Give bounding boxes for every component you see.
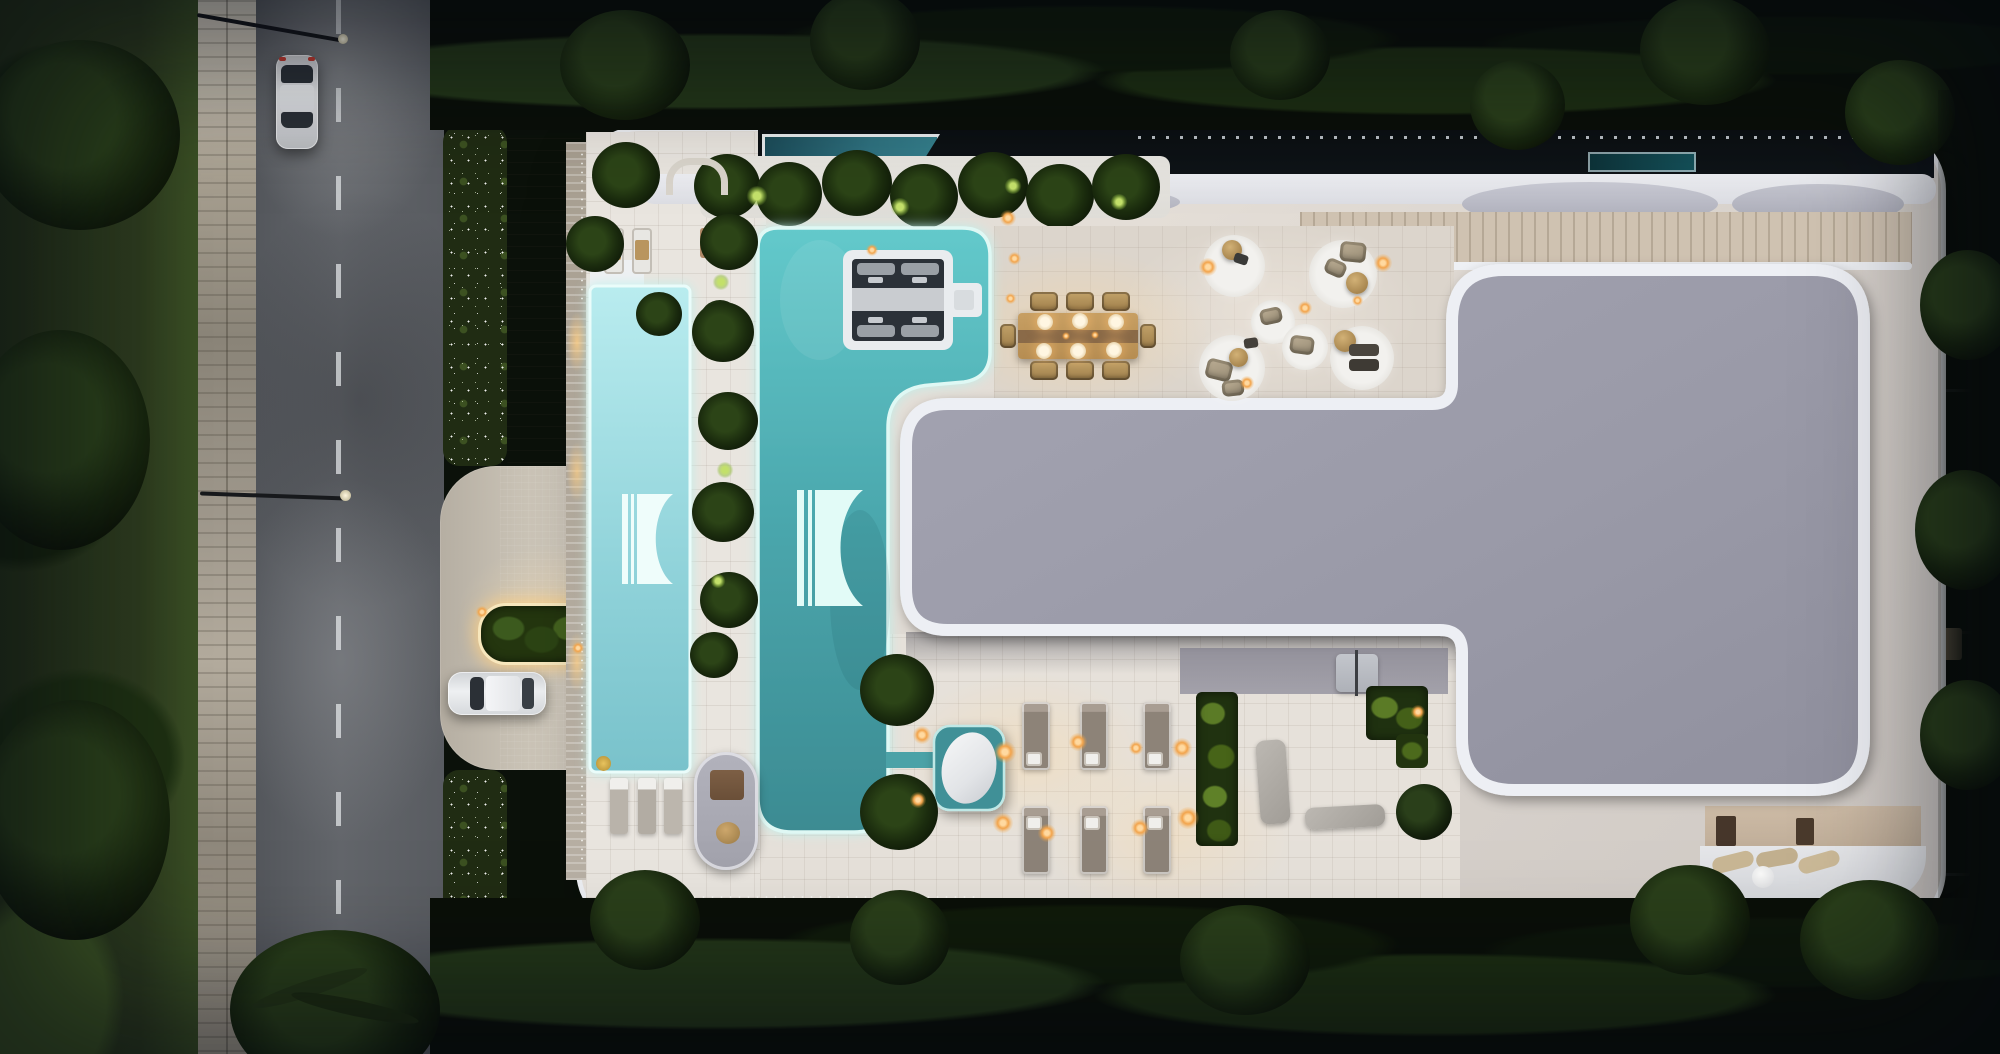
tree-bottom-2 xyxy=(850,890,950,985)
dining-chair-top-2 xyxy=(1066,292,1094,311)
lounge-armchair-2a xyxy=(1339,241,1367,264)
hedge-planter xyxy=(1196,692,1238,846)
midbed-palm-4 xyxy=(692,482,754,542)
sw-small-bed-1 xyxy=(610,778,628,834)
light-plunge-2 xyxy=(910,792,926,808)
narrow-pool-logo-bar-1 xyxy=(622,494,628,584)
spa-lounger-2 xyxy=(901,263,939,275)
light-sunbed-6 xyxy=(1038,824,1056,842)
tree-overhang-north-1 xyxy=(1470,60,1565,150)
scene xyxy=(0,0,2000,1054)
midbed-uplight-3 xyxy=(710,574,726,588)
dining-plate-4 xyxy=(1036,343,1052,359)
sunbed-table-3 xyxy=(1147,752,1163,766)
sw-pod-bench xyxy=(710,770,744,800)
dining-chair-right xyxy=(1140,324,1156,348)
tree-top-1 xyxy=(560,10,690,120)
light-entry-1 xyxy=(476,606,488,618)
corner-planter-tail xyxy=(1396,734,1428,768)
dining-plate-5 xyxy=(1070,343,1086,359)
sw-small-bed-3 xyxy=(664,778,682,834)
dining-chair-bottom-1 xyxy=(1030,361,1058,380)
light-entry-2 xyxy=(572,642,584,654)
sw-small-bed-2 xyxy=(638,778,656,834)
sunbed-table-1 xyxy=(1026,752,1042,766)
light-spa-2 xyxy=(1008,252,1021,265)
light-dining-candle-1 xyxy=(1062,332,1070,340)
light-sunbed-7 xyxy=(1131,819,1149,837)
spa-lounger-3 xyxy=(857,325,895,337)
spa-pillow-1 xyxy=(868,277,883,283)
spa-lounger-4 xyxy=(901,325,939,337)
stone-bench-horizontal xyxy=(1304,804,1385,830)
nw-plant-1 xyxy=(592,142,660,208)
dining-chair-left xyxy=(1000,324,1016,348)
dining-chair-top-1 xyxy=(1030,292,1058,311)
main-pool-logo-bar-2 xyxy=(808,490,812,606)
plunge-palm-top xyxy=(860,654,934,726)
stone-bench-vertical xyxy=(1255,739,1291,825)
light-lounge-2 xyxy=(1374,254,1392,272)
midbed-palm-3 xyxy=(698,392,758,450)
midbed-uplight-2 xyxy=(716,462,734,478)
tree-overhang-south-2 xyxy=(1800,880,1940,1000)
tree-top-4 xyxy=(1640,0,1770,105)
sw-pod-stool xyxy=(716,822,740,844)
spa-access-step xyxy=(954,290,974,310)
midbed-palm-1 xyxy=(700,214,758,270)
lounge-daybed-6a xyxy=(1349,344,1379,356)
sunbed-table-5 xyxy=(1084,816,1100,830)
midbed-palm-2 xyxy=(692,302,754,362)
light-sunbed-1 xyxy=(994,741,1016,763)
dining-plate-1 xyxy=(1037,314,1053,330)
spa-pillow-3 xyxy=(868,317,883,323)
spa-pillow-4 xyxy=(912,317,927,323)
midbed-palm-6 xyxy=(690,632,738,678)
lounge-daybed-6b xyxy=(1349,359,1379,371)
garden-bench-slat xyxy=(1355,650,1358,696)
tree-bottom-3 xyxy=(1180,905,1310,1015)
spa-center-band xyxy=(852,288,944,311)
lounge-table-2 xyxy=(1346,272,1368,294)
dining-plate-3 xyxy=(1108,314,1124,330)
light-spa-1 xyxy=(1000,210,1016,226)
nw-pergola-arc xyxy=(666,158,728,195)
light-sunbed-3 xyxy=(1129,741,1143,755)
dining-chair-bottom-2 xyxy=(1066,361,1094,380)
light-sunbed-4 xyxy=(1172,738,1192,758)
light-plunge-1 xyxy=(913,726,931,744)
dining-table-runner xyxy=(1018,330,1138,343)
midbed-uplight-1 xyxy=(712,274,730,290)
dining-plate-6 xyxy=(1106,342,1122,358)
dining-chair-bottom-3 xyxy=(1102,361,1130,380)
sw-stool-yellow xyxy=(596,756,611,771)
sunbed-table-2 xyxy=(1084,752,1100,766)
dining-chair-top-3 xyxy=(1102,292,1130,311)
sunbed-table-6 xyxy=(1147,816,1163,830)
lounge-throw-3 xyxy=(1243,337,1258,349)
light-corner-planter xyxy=(1411,705,1425,719)
plunge-palm-bottom xyxy=(860,774,938,850)
lounge-armchair-4 xyxy=(1289,334,1315,355)
light-lounge-1 xyxy=(1199,258,1217,276)
spa-lounger-1 xyxy=(857,263,895,275)
light-spa-3 xyxy=(1005,293,1016,304)
spa-pillow-2 xyxy=(912,277,927,283)
nw-plant-2 xyxy=(566,216,624,272)
light-sunbed-2 xyxy=(1069,733,1087,751)
tree-top-3 xyxy=(1230,10,1330,100)
dining-plate-2 xyxy=(1072,313,1088,329)
tree-overhang-south-1 xyxy=(1630,865,1750,975)
light-lounge-3 xyxy=(1298,301,1312,315)
round-bush xyxy=(1396,784,1452,840)
narrow-pool-logo-bar-2 xyxy=(631,494,634,584)
midbed-palm-5 xyxy=(700,572,758,628)
light-spa-4 xyxy=(866,244,878,256)
lounge-table-5 xyxy=(1229,348,1248,367)
nw-plant-3 xyxy=(636,292,682,336)
nw-lounger-2-cushion xyxy=(635,240,649,260)
light-sunbed-5 xyxy=(993,813,1013,833)
plunge-channel xyxy=(886,752,940,768)
light-dining-candle-2 xyxy=(1091,331,1099,339)
light-lounge-4 xyxy=(1240,376,1254,390)
light-lounge-5 xyxy=(1352,295,1363,306)
tree-bottom-1 xyxy=(590,870,700,970)
light-sunbed-8 xyxy=(1177,807,1199,829)
main-pool-logo-bar-1 xyxy=(797,490,804,606)
